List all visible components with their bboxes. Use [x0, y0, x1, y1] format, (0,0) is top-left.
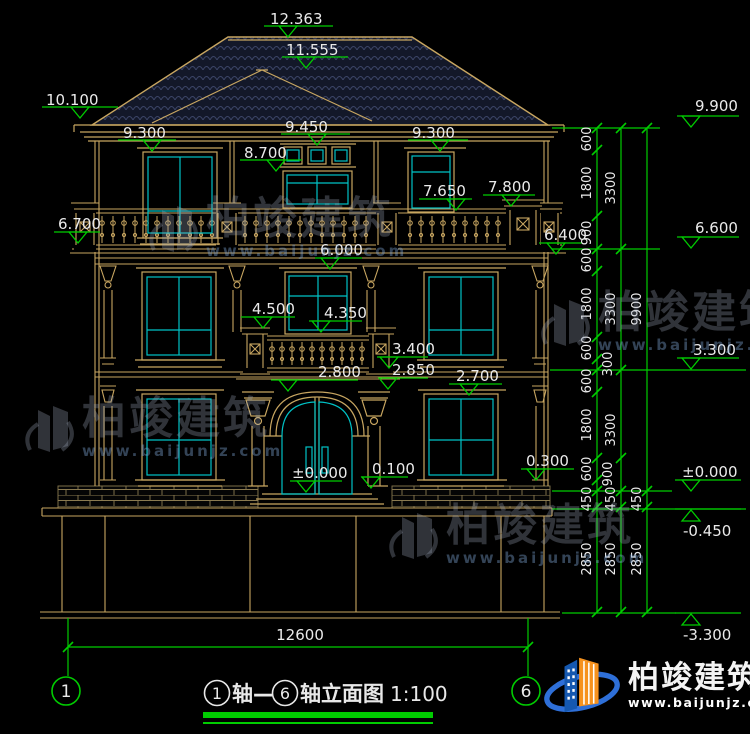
dim-label: 450: [580, 487, 595, 512]
dim-label: 900: [601, 462, 616, 487]
level-label: 4.350: [324, 304, 367, 322]
pedestal-body: [506, 200, 540, 252]
drawing-title: 1 轴— 6 轴立面图 1:100: [203, 681, 448, 725]
dim-label: 450: [630, 487, 645, 512]
level-label: 0.300: [526, 452, 569, 470]
dim-label: 300: [601, 352, 616, 377]
axis-number: 6: [521, 682, 532, 702]
level-triangle: [682, 510, 700, 521]
brand-name: 柏竣建筑: [628, 663, 750, 694]
level-label: 8.700: [244, 144, 287, 162]
level-label: 6.000: [320, 241, 363, 259]
dim-label: 1800: [580, 166, 595, 199]
dim-label: 600: [580, 457, 595, 482]
level-marker: 0.100: [361, 460, 415, 488]
pedestal-large: [502, 200, 544, 252]
level-triangle: [682, 116, 700, 127]
balcony-pedestal: [240, 328, 270, 374]
dim-label: 9900: [630, 292, 645, 325]
level-triangle: [682, 237, 700, 248]
level-triangle: [254, 317, 272, 328]
dim-label: 12600: [276, 626, 324, 644]
level-triangle: [682, 358, 700, 369]
dim-label: 2850: [630, 542, 645, 575]
entrance-porch: [242, 392, 390, 504]
level-marker: -0.450: [675, 509, 741, 540]
window-glazing: [147, 150, 493, 494]
level-triangle: [682, 480, 700, 491]
level-label: -0.450: [683, 522, 731, 540]
level-label: 0.100: [372, 460, 415, 478]
dim-label: 1800: [580, 287, 595, 320]
level-triangle: [682, 614, 700, 625]
elevation-drawing: 12.36311.55510.1009.3009.4509.3008.7007.…: [0, 0, 750, 734]
level-marker: ±0.000: [675, 463, 741, 491]
title-underline-thin: [203, 722, 433, 724]
level-label: 3.300: [693, 341, 736, 359]
cad-elevation-screenshot: { "drawing": { "colors": { "line": "#c8a…: [0, 0, 750, 734]
dim-label: 1800: [580, 408, 595, 441]
level-label: ±0.000: [682, 463, 738, 481]
dim-label: 900: [580, 221, 595, 246]
level-label: 11.555: [286, 41, 339, 59]
level-marker: 4.500: [241, 300, 295, 328]
level-marker: 10.100: [42, 91, 118, 118]
level-label: 6.600: [695, 219, 738, 237]
title-axis-b: 6: [280, 684, 290, 703]
level-marker: -3.300: [675, 613, 741, 644]
level-label: 9.300: [412, 124, 455, 142]
dim-label: 600: [580, 369, 595, 394]
level-label: 9.900: [695, 97, 738, 115]
brand-url: www.baijunjz.com: [628, 695, 750, 710]
dim-label: 2850: [604, 542, 619, 575]
level-triangle: [297, 481, 315, 492]
title-scale: 1:100: [390, 682, 448, 706]
level-marker: 6.000: [315, 241, 363, 269]
brand-icon: [541, 649, 625, 723]
dim-label: 600: [580, 248, 595, 273]
level-label: 9.300: [123, 124, 166, 142]
axis-bubble: 1: [52, 677, 80, 705]
level-triangle: [279, 380, 297, 391]
axis-number: 1: [61, 682, 72, 702]
dim-label: 450: [604, 487, 619, 512]
foundation-columns: [62, 516, 544, 612]
level-marker: 9.900: [677, 97, 739, 127]
dim-label: 600: [580, 336, 595, 361]
title-suffix: 轴立面图: [300, 682, 384, 706]
level-marker: 2.700: [449, 367, 502, 395]
level-extension-lines: [68, 128, 746, 676]
axis-bubble: 6: [512, 677, 540, 705]
level-label: 7.800: [488, 178, 531, 196]
dim-label: 2850: [580, 542, 595, 575]
level-marker: 7.650: [419, 182, 472, 210]
level-label: 9.450: [285, 118, 328, 136]
bottom-dimension: 12600: [63, 626, 533, 652]
level-label: 7.650: [423, 182, 466, 200]
dim-label: 600: [580, 127, 595, 152]
level-marker: 6.600: [677, 219, 739, 248]
floor-bands: [40, 209, 566, 618]
pedestal: [373, 203, 401, 252]
level-marker: 3.300: [677, 341, 739, 369]
brand-logo: 柏竣建筑 www.baijunjz.com: [541, 649, 750, 723]
dim-label: 3300: [604, 413, 619, 446]
level-label: 4.500: [252, 300, 295, 318]
dim-label: 3300: [604, 292, 619, 325]
level-label: 2.850: [392, 361, 435, 379]
level-triangle: [379, 378, 397, 389]
level-marker: 12.363: [264, 10, 333, 37]
level-label: 2.800: [318, 363, 361, 381]
level-label: -3.300: [683, 626, 731, 644]
level-label: 6.700: [58, 215, 101, 233]
title-joiner: 轴—: [232, 682, 274, 706]
title-axis-a: 1: [212, 684, 222, 703]
title-underline: [203, 712, 433, 718]
level-label: ±0.000: [292, 464, 348, 482]
dim-label: 3300: [604, 171, 619, 204]
level-label: 10.100: [46, 91, 99, 109]
level-label: 2.700: [456, 367, 499, 385]
level-label: 12.363: [270, 10, 323, 28]
level-label: 3.400: [392, 340, 435, 358]
